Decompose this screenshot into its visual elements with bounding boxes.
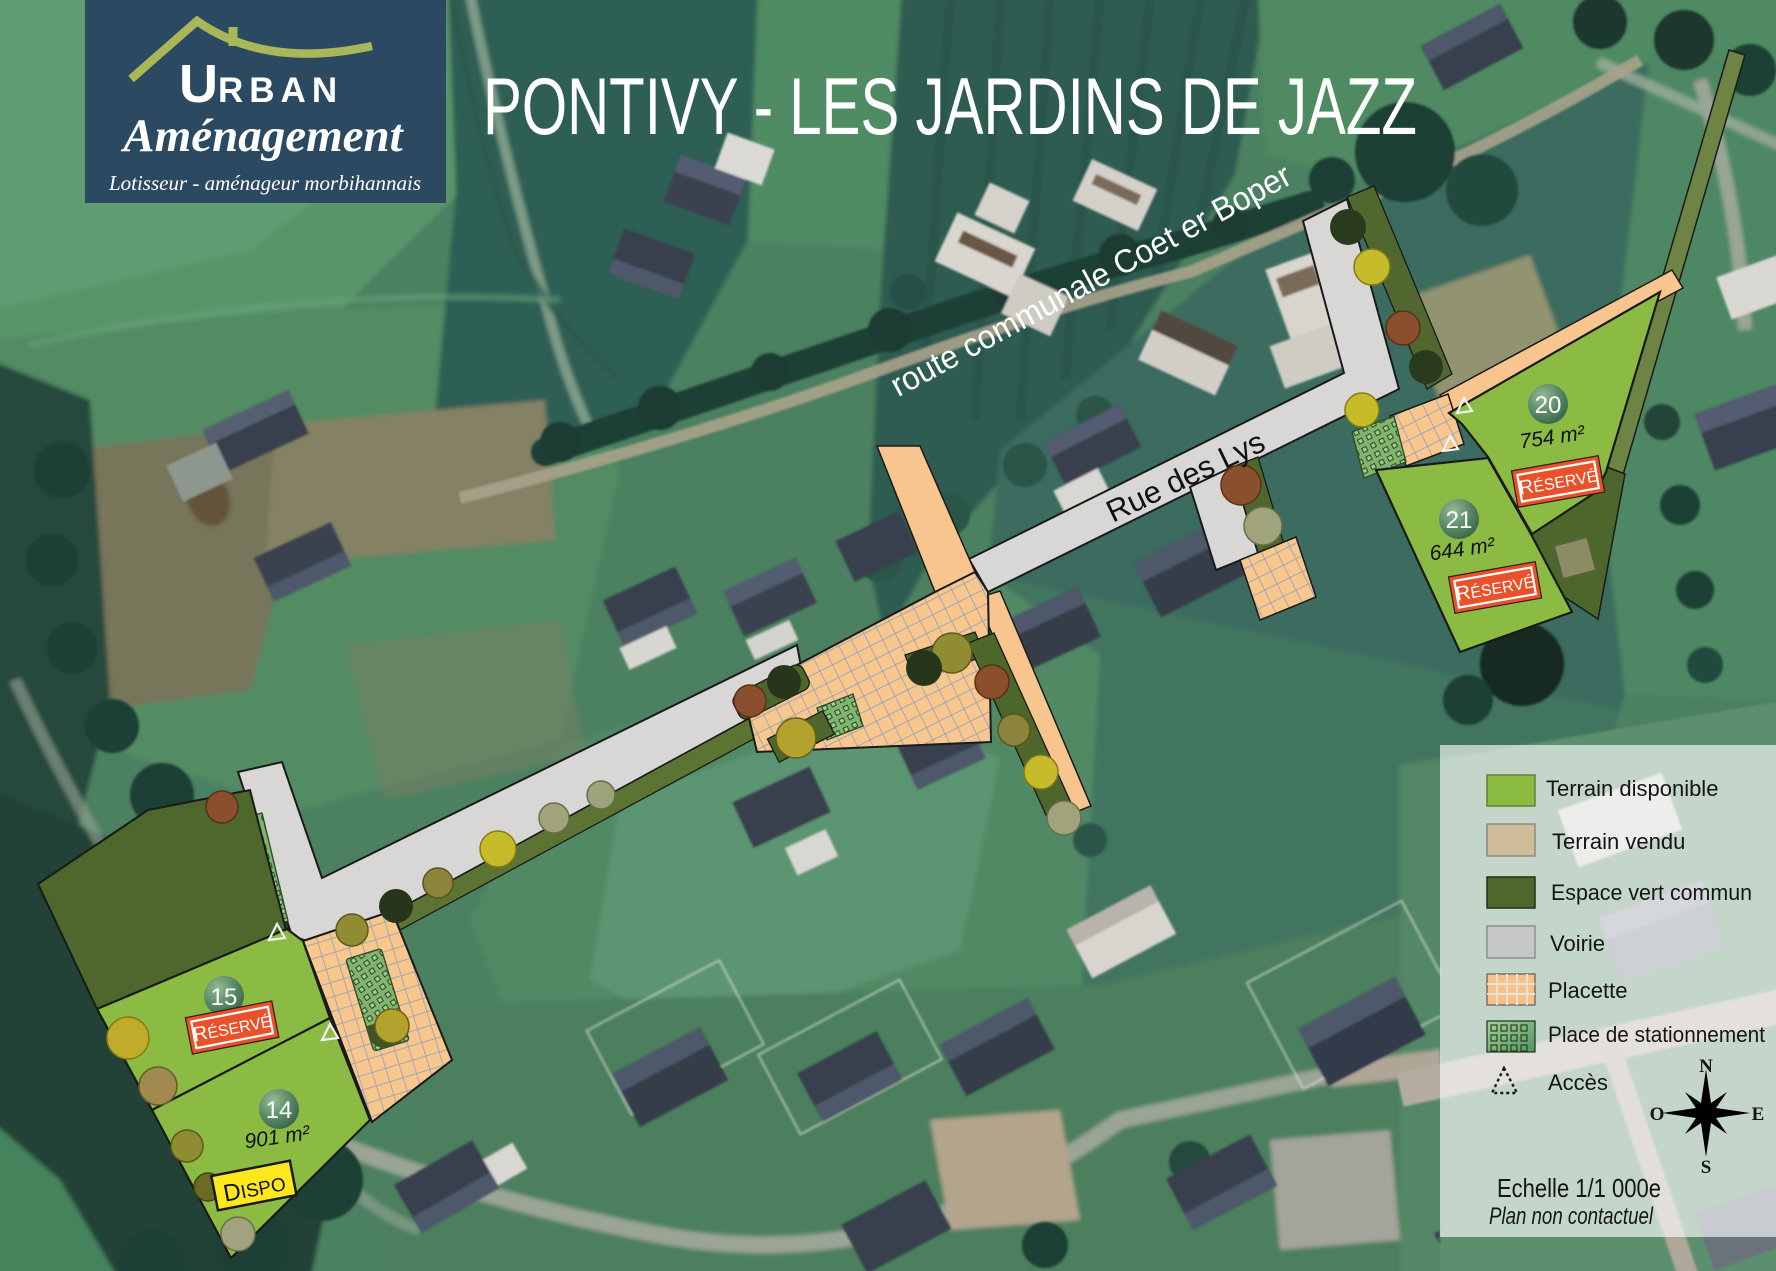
svg-text:14: 14 bbox=[266, 1097, 293, 1124]
svg-text:Lotisseur - aménageur morbihan: Lotisseur - aménageur morbihannais bbox=[108, 171, 421, 195]
svg-text:E: E bbox=[1752, 1104, 1765, 1125]
svg-text:Placette: Placette bbox=[1548, 978, 1628, 1003]
svg-text:Terrain vendu: Terrain vendu bbox=[1552, 829, 1685, 854]
svg-text:Echelle 1/1 000e: Echelle 1/1 000e bbox=[1497, 1173, 1661, 1203]
svg-text:Terrain disponible: Terrain disponible bbox=[1546, 776, 1718, 801]
svg-text:Espace vert commun: Espace vert commun bbox=[1551, 880, 1752, 905]
svg-text:O: O bbox=[1650, 1104, 1665, 1125]
svg-text:20: 20 bbox=[1535, 392, 1562, 419]
svg-text:Aménagement: Aménagement bbox=[120, 110, 404, 162]
svg-text:Voirie: Voirie bbox=[1550, 931, 1605, 956]
svg-text:Plan non contactuel: Plan non contactuel bbox=[1489, 1203, 1654, 1230]
svg-text:15: 15 bbox=[211, 984, 238, 1011]
svg-text:N: N bbox=[1699, 1056, 1713, 1077]
svg-text:S: S bbox=[1701, 1157, 1712, 1178]
svg-text:21: 21 bbox=[1446, 507, 1473, 534]
svg-text:Accès: Accès bbox=[1548, 1070, 1608, 1095]
svg-text:PONTIVY - LES JARDINS DE JAZZ: PONTIVY - LES JARDINS DE JAZZ bbox=[483, 62, 1417, 152]
svg-text:Place de stationnement: Place de stationnement bbox=[1548, 1022, 1765, 1047]
